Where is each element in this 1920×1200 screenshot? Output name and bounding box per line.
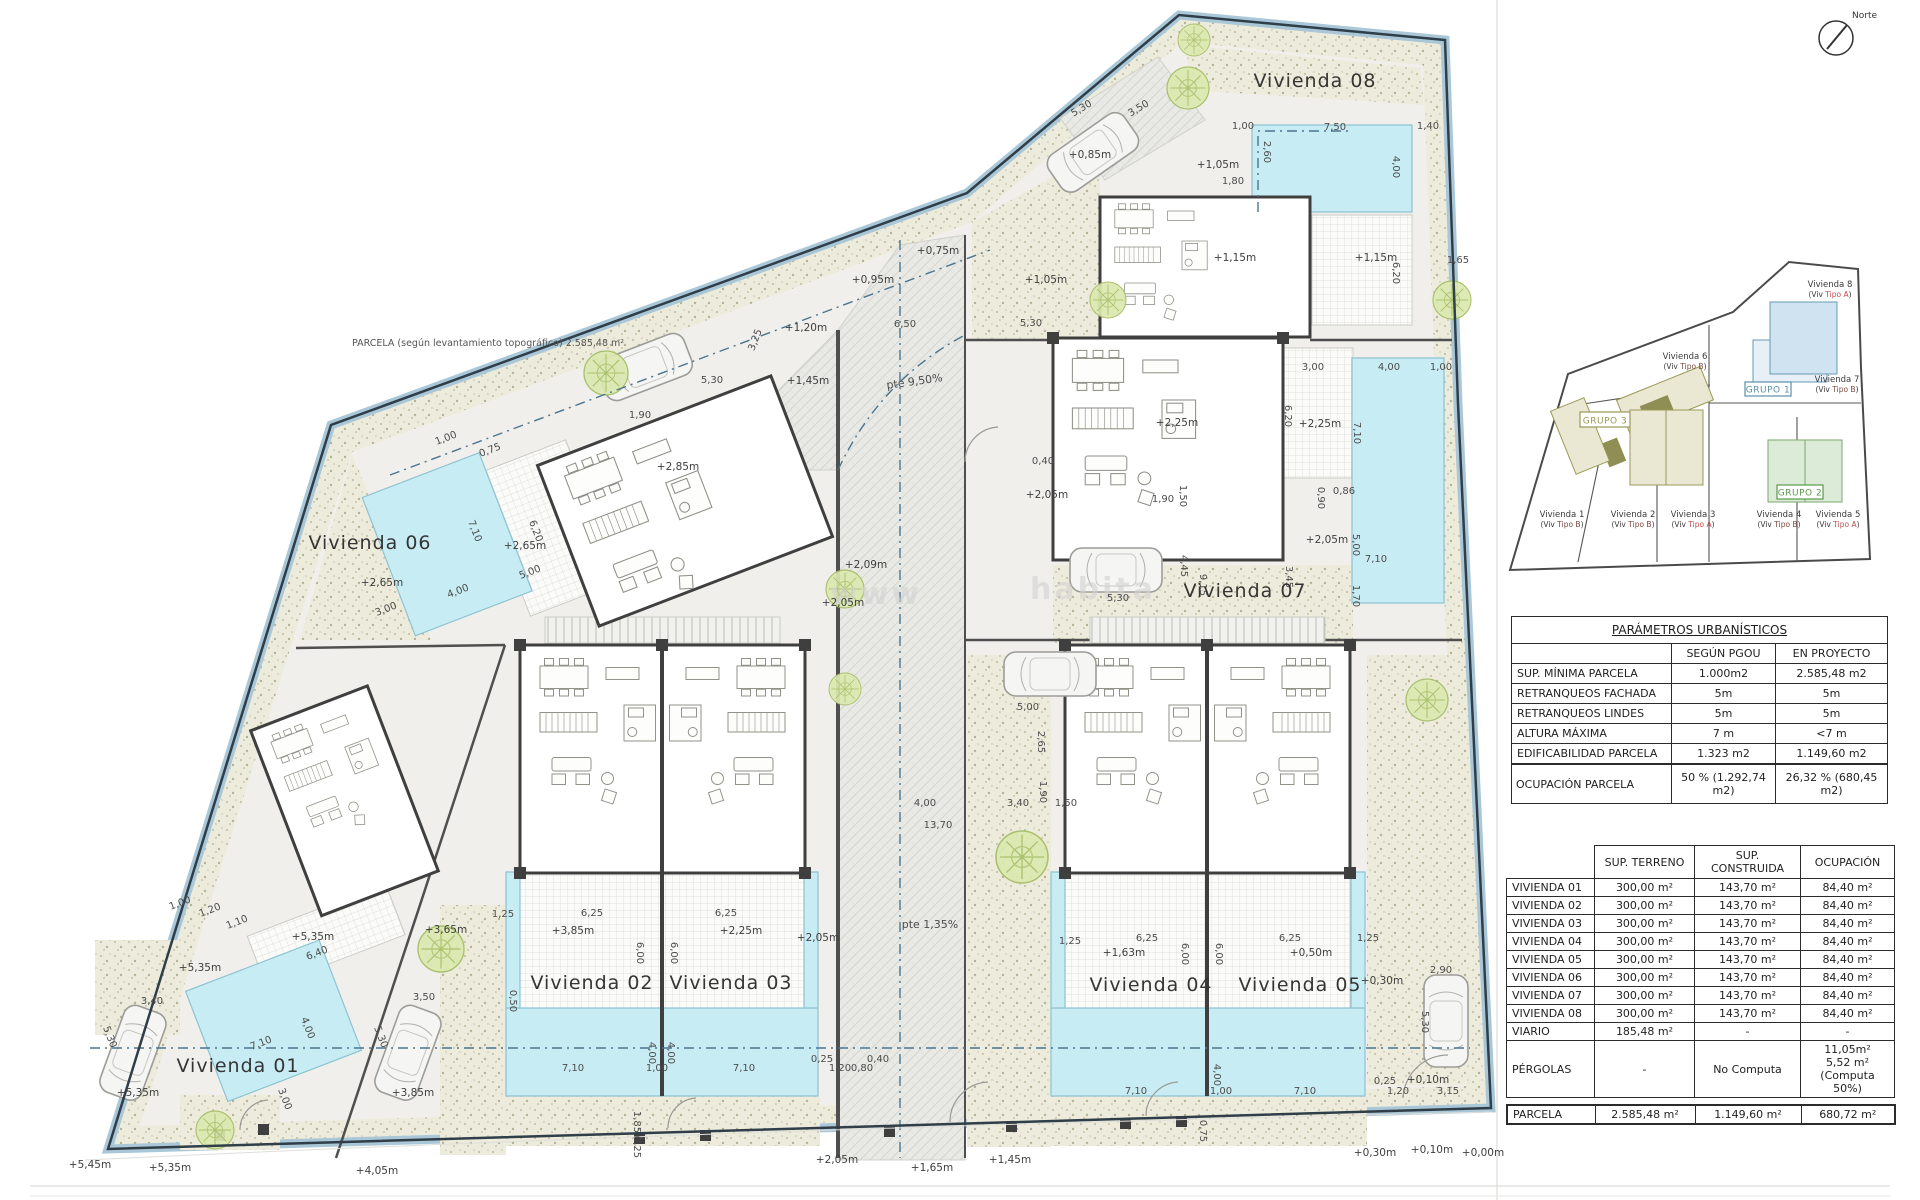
dimension-label: 3,40 [1007, 798, 1029, 809]
tree-icon [1178, 24, 1210, 56]
table-cell: 50 % (1.292,74 m2) [1672, 764, 1776, 804]
dimension-label: 6,25 [715, 908, 737, 919]
elevation-label: +0,85m [1069, 149, 1111, 161]
table-cell: 5m [1672, 684, 1776, 704]
parcela-total-table: PARCELA2.585,48 m²1.149,60 m²680,72 m² [1506, 1104, 1896, 1125]
pool-vivienda-07 [1352, 358, 1444, 603]
table-cell: 5m [1776, 704, 1888, 724]
dimension-label: 4,00 [1378, 362, 1400, 373]
table-cell: 143,70 m² [1695, 987, 1801, 1005]
elevation-label: +2,65m [361, 577, 403, 589]
dimension-label: 3,50 [413, 992, 435, 1003]
vivienda-label: Vivienda 08 [1253, 70, 1376, 92]
dimension-label: 1,85 [631, 1111, 642, 1133]
group-badge-label: GRUPO 3 [1583, 417, 1627, 427]
table-row: VIVIENDA 07300,00 m²143,70 m²84,40 m² [1507, 987, 1895, 1005]
tree-icon [1090, 282, 1126, 318]
elevation-label: +2,65m [504, 540, 546, 552]
key-plan-unit-label: Vivienda 4(Viv Tipo B) [1757, 510, 1802, 529]
tree-icon [1406, 679, 1448, 721]
elevation-label: +1,05m [1025, 274, 1067, 286]
elevation-label: +1,15m [1214, 252, 1256, 264]
key-plan-unit-label: Vivienda 2(Viv Tipo B) [1611, 510, 1656, 529]
vivienda-label: Vivienda 05 [1238, 974, 1361, 996]
car-icon [1004, 652, 1096, 696]
table-cell: 84,40 m² [1801, 897, 1895, 915]
table-cell: VIVIENDA 02 [1507, 897, 1595, 915]
dimension-label: 3,15 [1437, 1086, 1459, 1097]
dimension-label: 7,50 [1324, 122, 1346, 133]
table-cell: 84,40 m² [1801, 933, 1895, 951]
table-cell: 300,00 m² [1595, 1005, 1695, 1023]
elevation-label: +3,85m [552, 925, 594, 937]
dimension-label: 1,50 [1055, 798, 1077, 809]
dimension-label: 7,10 [1351, 422, 1362, 444]
dimension-label: 5,30 [1020, 318, 1042, 329]
table-cell: VIVIENDA 03 [1507, 915, 1595, 933]
table-cell: - [1695, 1023, 1801, 1041]
elevation-label: +2,09m [845, 559, 887, 571]
elevation-label: +5,45m [69, 1159, 111, 1171]
dimension-label: 7,10 [1365, 554, 1387, 565]
elevation-label: +2,05m [1026, 489, 1068, 501]
table-cell: VIVIENDA 07 [1507, 987, 1595, 1005]
building-vivienda-08 [1100, 197, 1310, 337]
key-building-v2-v3 [1630, 410, 1703, 485]
elevation-label: +2,25m [720, 925, 762, 937]
table-cell: 143,70 m² [1695, 915, 1801, 933]
table-cell: 300,00 m² [1595, 879, 1695, 897]
elevation-label: +2,05m [816, 1154, 858, 1166]
vivienda-label: Vivienda 01 [176, 1055, 299, 1077]
elevation-label: +2,25m [1299, 418, 1341, 430]
tree-icon [996, 831, 1048, 883]
elevation-label: +3,65m [425, 924, 467, 936]
table-row: VIVIENDA 03300,00 m²143,70 m²84,40 m² [1507, 915, 1895, 933]
table-cell: 143,70 m² [1695, 969, 1801, 987]
surface-areas-table: SUP. TERRENO SUP. CONSTRUIDA OCUPACIÓN V… [1506, 845, 1894, 1125]
dimension-label: 6,25 [581, 908, 603, 919]
key-plan-unit-label: Vivienda 7(Viv Tipo B) [1815, 375, 1860, 394]
dimension-label: 2,90 [1430, 965, 1452, 976]
params-col-header: EN PROYECTO [1776, 644, 1888, 664]
dimension-label: 5,00 [1350, 534, 1361, 556]
dimension-label: 6,50 [894, 319, 916, 330]
table-cell: 5m [1672, 704, 1776, 724]
vivienda-label: Vivienda 02 [530, 972, 653, 994]
dimension-label: 6,00 [1179, 943, 1190, 965]
dimension-label: 0,75 [1197, 1120, 1208, 1142]
table-row: RETRANQUEOS FACHADA5m5m [1512, 684, 1888, 704]
areas-empty-corner [1507, 846, 1595, 879]
elevation-label: +3,85m [392, 1087, 434, 1099]
dimension-label: 5,30 [1107, 593, 1129, 604]
elevation-label: +4,05m [356, 1165, 398, 1177]
table-cell: 1.000m2 [1672, 664, 1776, 684]
table-cell: RETRANQUEOS FACHADA [1512, 684, 1672, 704]
vivienda-label: Vivienda 07 [1183, 580, 1306, 602]
urban-parameters-table: PARÁMETROS URBANÍSTICOS SEGÚN PGOU EN PR… [1511, 616, 1887, 804]
table-cell: <7 m [1776, 724, 1888, 744]
table-cell: PÉRGOLAS [1507, 1041, 1595, 1098]
table-row: SUP. MÍNIMA PARCELA1.000m22.585,48 m2 [1512, 664, 1888, 684]
table-cell: 11,05m² 5,52 m² (Computa 50%) [1801, 1041, 1895, 1098]
tree-icon [1167, 67, 1209, 109]
dimension-label: 1,25 [1059, 936, 1081, 947]
table-cell: PARCELA [1507, 1105, 1595, 1124]
table-cell: 84,40 m² [1801, 879, 1895, 897]
table-cell: 680,72 m² [1801, 1105, 1895, 1124]
table-cell: OCUPACIÓN PARCELA [1512, 764, 1672, 804]
dimension-label: 7,10 [733, 1063, 755, 1074]
key-plan: GRUPO 1GRUPO 2GRUPO 3 Vivienda 1(Viv Tip… [1500, 252, 1880, 582]
table-row: RETRANQUEOS LINDES5m5m [1512, 704, 1888, 724]
dimension-label: 1,50 [1177, 485, 1188, 507]
areas-col-header: SUP. TERRENO [1595, 846, 1695, 879]
table-cell: VIVIENDA 08 [1507, 1005, 1595, 1023]
elevation-label: +0,10m [1411, 1144, 1453, 1156]
dimension-label: 1,25 [1357, 933, 1379, 944]
dimension-label: 0,40 [1032, 456, 1054, 467]
dimension-label: 1,00 [646, 1063, 668, 1074]
table-cell: No Computa [1695, 1041, 1801, 1098]
elevation-label: +1,45m [989, 1154, 1031, 1166]
watermark-text: habita [1030, 572, 1156, 607]
table-cell: 2.585,48 m2 [1776, 664, 1888, 684]
table-cell: RETRANQUEOS LINDES [1512, 704, 1672, 724]
table-cell: 185,48 m² [1595, 1023, 1695, 1041]
dimension-label: 0,86 [1333, 486, 1355, 497]
table-cell: VIVIENDA 06 [1507, 969, 1595, 987]
plan-sheet: wwwhabita 7,106,204,003,005,001,000,755,… [0, 0, 1920, 1200]
tree-icon [829, 673, 861, 705]
table-cell: - [1801, 1023, 1895, 1041]
parcela-note: PARCELA (según levantamiento topográfico… [352, 338, 624, 349]
dimension-label: 4,45 [1178, 555, 1189, 577]
table-cell: 300,00 m² [1595, 915, 1695, 933]
dimension-label: 1,00 [1210, 1086, 1232, 1097]
dimension-label: 1,40 [1417, 121, 1439, 132]
dimension-label: 13,70 [924, 820, 953, 831]
dimension-label: 1,00 [1430, 362, 1452, 373]
table-cell: ALTURA MÁXIMA [1512, 724, 1672, 744]
table-cell: 143,70 m² [1695, 933, 1801, 951]
table-row: ALTURA MÁXIMA7 m<7 m [1512, 724, 1888, 744]
elevation-label: +0,30m [1361, 975, 1403, 987]
table-cell: 143,70 m² [1695, 879, 1801, 897]
dimension-label: 1,25 [492, 909, 514, 920]
elevation-label: +0,10m [1407, 1074, 1449, 1086]
dimension-label: 1,90 [629, 410, 651, 421]
elevation-label: +0,95m [852, 274, 894, 286]
dimension-label: 4,00 [665, 1042, 676, 1064]
dimension-label: 4,00 [1211, 1064, 1222, 1086]
vivienda-label: Vivienda 06 [308, 532, 431, 554]
table-cell: 84,40 m² [1801, 969, 1895, 987]
group-badge-label: GRUPO 2 [1778, 489, 1822, 499]
vivienda-label: Vivienda 04 [1089, 974, 1212, 996]
dimension-label: 1,00 [1232, 121, 1254, 132]
dimension-label: 1,70 [1350, 585, 1361, 607]
elevation-label: +2,05m [1306, 534, 1348, 546]
dimension-label: 4,00 [646, 1042, 657, 1064]
table-cell: 84,40 m² [1801, 987, 1895, 1005]
elevation-label: +0,75m [917, 245, 959, 257]
table-cell: 300,00 m² [1595, 933, 1695, 951]
table-cell: 26,32 % (680,45 m2) [1776, 764, 1888, 804]
table-cell: 84,40 m² [1801, 951, 1895, 969]
dimension-label: 6,00 [668, 942, 679, 964]
dimension-label: 7,10 [562, 1063, 584, 1074]
elevation-label: +1,15m [1355, 252, 1397, 264]
table-row: EDIFICABILIDAD PARCELA1.323 m21.149,60 m… [1512, 744, 1888, 765]
elevation-label: +2,25m [1156, 417, 1198, 429]
elevation-label: +0,30m [1354, 1147, 1396, 1159]
dimension-label: 4,00 [1390, 156, 1401, 178]
table-row: VIVIENDA 01300,00 m²143,70 m²84,40 m² [1507, 879, 1895, 897]
dimension-label: 6,00 [1213, 943, 1224, 965]
table-cell: VIVIENDA 05 [1507, 951, 1595, 969]
table-cell: VIARIO [1507, 1023, 1595, 1041]
table-row: PARCELA2.585,48 m²1.149,60 m²680,72 m² [1507, 1105, 1895, 1124]
tree-icon [1433, 281, 1471, 319]
dimension-label: 5,30 [701, 375, 723, 386]
table-cell: VIVIENDA 04 [1507, 933, 1595, 951]
north-label: Norte [1852, 11, 1877, 21]
dimension-label: 6,25 [1136, 933, 1158, 944]
dimension-label: 7,10 [1294, 1086, 1316, 1097]
elevation-label: +5,35m [179, 962, 221, 974]
elevation-label: +1,63m [1103, 947, 1145, 959]
key-plan-unit-label: Vivienda 3(Viv Tipo A) [1671, 510, 1716, 529]
table-cell: 143,70 m² [1695, 897, 1801, 915]
elevation-label: +5,35m [117, 1087, 159, 1099]
table-row: VIVIENDA 04300,00 m²143,70 m²84,40 m² [1507, 933, 1895, 951]
dimension-label: 0,90 [1315, 487, 1326, 509]
elevation-label: +1,65m [911, 1162, 953, 1174]
elevation-label: +0,00m [1462, 1147, 1504, 1159]
group-badge-label: GRUPO 1 [1746, 386, 1790, 396]
dimension-label: 1,65 [1447, 255, 1469, 266]
elevation-label: +1,45m [787, 375, 829, 387]
dimension-label: 2,60 [1261, 141, 1272, 163]
dimension-label: 1,20 [1387, 1086, 1409, 1097]
table-row: VIVIENDA 05300,00 m²143,70 m²84,40 m² [1507, 951, 1895, 969]
elevation-label: +1,05m [1197, 159, 1239, 171]
dimension-label: 6,00 [634, 942, 645, 964]
elevation-label: +5,35m [292, 931, 334, 943]
table-cell: 143,70 m² [1695, 951, 1801, 969]
areas-col-header: SUP. CONSTRUIDA [1695, 846, 1801, 879]
key-plan-unit-label: Vivienda 5(Viv Tipo A) [1816, 510, 1861, 529]
table-cell: 2.585,48 m² [1595, 1105, 1695, 1124]
building-vivienda-07 [1053, 338, 1283, 560]
dimension-label: 2,65 [1035, 731, 1046, 753]
params-table-title: PARÁMETROS URBANÍSTICOS [1512, 617, 1888, 644]
key-plan-unit-label: Vivienda 6(Viv Tipo B) [1663, 352, 1708, 371]
dimension-label: 6,25 [1279, 933, 1301, 944]
dimension-label: 0,25 [631, 1136, 642, 1158]
areas-col-header: OCUPACIÓN [1801, 846, 1895, 879]
table-row: VIVIENDA 06300,00 m²143,70 m²84,40 m² [1507, 969, 1895, 987]
table-row: PÉRGOLAS-No Computa11,05m² 5,52 m² (Comp… [1507, 1041, 1895, 1098]
table-row: VIARIO185,48 m²-- [1507, 1023, 1895, 1041]
dimension-label: 1,90 [1152, 494, 1174, 505]
dimension-label: 0,40 [867, 1054, 889, 1065]
table-cell: 84,40 m² [1801, 915, 1895, 933]
table-cell: 143,70 m² [1695, 1005, 1801, 1023]
table-cell: 1.149,60 m2 [1776, 744, 1888, 765]
elevation-label: +2,05m [797, 932, 839, 944]
dimension-label: 6,20 [1282, 405, 1293, 427]
elevation-label: +0,50m [1290, 947, 1332, 959]
dimension-label: 1,90 [1037, 781, 1048, 803]
key-plan-unit-label: Vivienda 8(Viv Tipo A) [1808, 280, 1853, 299]
table-row: OCUPACIÓN PARCELA50 % (1.292,74 m2)26,32… [1512, 764, 1888, 804]
elevation-label: +2,85m [657, 461, 699, 473]
params-col-header: SEGÚN PGOU [1672, 644, 1776, 664]
dimension-label: 5,00 [1017, 702, 1039, 713]
dimension-label: 6,20 [1390, 262, 1401, 284]
table-cell: 1.323 m2 [1672, 744, 1776, 765]
table-cell: 5m [1776, 684, 1888, 704]
table-row: VIVIENDA 08300,00 m²143,70 m²84,40 m² [1507, 1005, 1895, 1023]
elevation-label: +2,05m [822, 597, 864, 609]
elevation-label: +1,20m [785, 322, 827, 334]
table-cell: EDIFICABILIDAD PARCELA [1512, 744, 1672, 765]
key-building-v8 [1770, 302, 1837, 374]
table-cell: 300,00 m² [1595, 987, 1695, 1005]
table-cell: 300,00 m² [1595, 897, 1695, 915]
elevation-label: +5,35m [149, 1162, 191, 1174]
table-cell: 300,00 m² [1595, 951, 1695, 969]
table-cell: 300,00 m² [1595, 969, 1695, 987]
dimension-label: 4,00 [914, 798, 936, 809]
table-cell: VIVIENDA 01 [1507, 879, 1595, 897]
table-cell: 1.149,60 m² [1695, 1105, 1801, 1124]
vivienda-label: Vivienda 03 [669, 972, 792, 994]
slope-label: pte 1,35% [902, 918, 959, 931]
dimension-label: 3,00 [1302, 362, 1324, 373]
table-row: VIVIENDA 02300,00 m²143,70 m²84,40 m² [1507, 897, 1895, 915]
dimension-label: 7,10 [1125, 1086, 1147, 1097]
dimension-label: 3,40 [141, 996, 163, 1007]
table-cell: - [1595, 1041, 1695, 1098]
dimension-label: 1,80 [1222, 176, 1244, 187]
table-cell: 84,40 m² [1801, 1005, 1895, 1023]
key-plan-unit-label: Vivienda 1(Viv Tipo B) [1540, 510, 1585, 529]
tree-icon [196, 1111, 234, 1149]
dimension-label: 5,30 [1419, 1011, 1430, 1033]
dimension-label: 1,20 [829, 1063, 851, 1074]
table-cell: 7 m [1672, 724, 1776, 744]
table-cell: SUP. MÍNIMA PARCELA [1512, 664, 1672, 684]
dimension-label: 0,50 [507, 990, 518, 1012]
params-empty-corner [1512, 644, 1672, 664]
